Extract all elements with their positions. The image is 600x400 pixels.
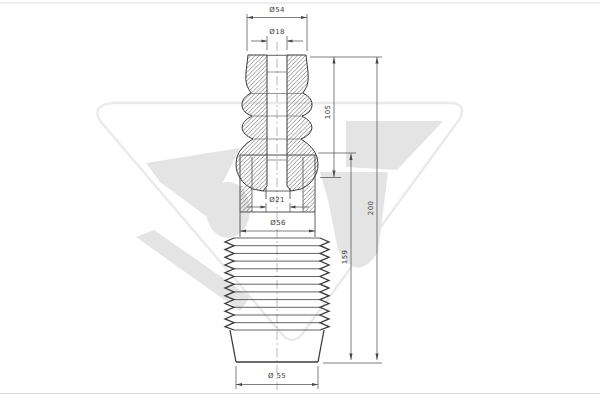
label-top-width: Ø54 xyxy=(269,6,285,14)
bump-stop-left-half xyxy=(236,55,267,191)
arrow-left-icon xyxy=(290,205,296,208)
arrow-right-icon xyxy=(262,39,268,42)
label-boot-length: 159 xyxy=(341,250,349,264)
label-bottom-width: Ø 55 xyxy=(268,372,286,380)
dim-rod-bore-lines xyxy=(247,203,309,212)
label-rod-bore: Ø21 xyxy=(269,196,284,204)
arrow-right-icon xyxy=(261,205,267,208)
arrow-down-icon xyxy=(375,354,378,360)
arrow-up-icon xyxy=(375,58,378,64)
boot-cap-left-wall-hatch xyxy=(241,186,253,212)
arrow-left-icon xyxy=(247,16,253,19)
arrow-right-icon xyxy=(312,383,318,386)
label-overall-length: 200 xyxy=(367,201,375,215)
arrow-up-icon xyxy=(332,58,335,64)
bump-stop-right-half xyxy=(287,55,318,191)
arrow-right-icon xyxy=(309,229,315,232)
label-top-bore: Ø18 xyxy=(269,28,284,36)
arrow-right-icon xyxy=(301,16,307,19)
logo-center-body xyxy=(320,172,388,268)
label-bump-stop-length: 105 xyxy=(324,105,332,119)
arrow-left-icon xyxy=(287,39,293,42)
label-boot-neck: Ø56 xyxy=(270,219,286,227)
catalog-part-drawing-page: Ø54 Ø18 105 Ø21 Ø56 159 200 Ø 55 xyxy=(0,0,600,400)
technical-drawing-canvas: Ø54 Ø18 105 Ø21 Ø56 159 200 Ø 55 xyxy=(0,0,600,400)
arrow-down-icon xyxy=(349,354,352,360)
bellows-right-edge xyxy=(320,238,329,330)
arrow-left-icon xyxy=(236,383,242,386)
boot-cap-right-wall-hatch xyxy=(303,186,315,212)
